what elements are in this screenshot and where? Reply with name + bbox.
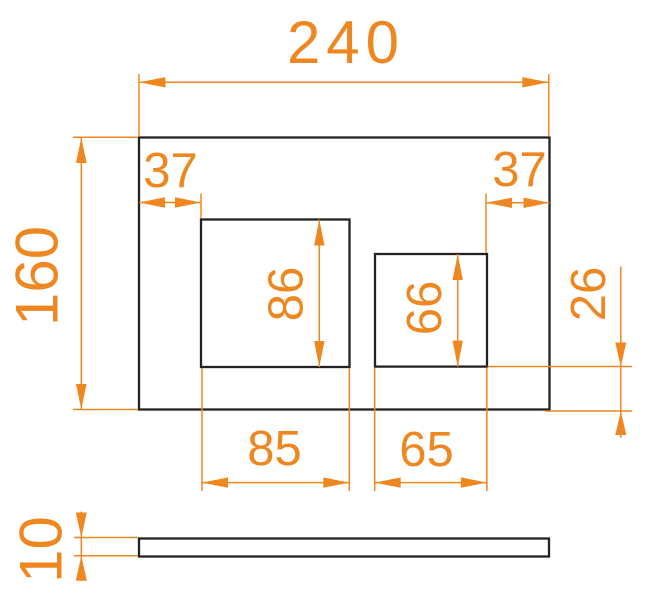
svg-text:26: 26 xyxy=(562,267,616,322)
svg-text:85: 85 xyxy=(247,422,302,476)
svg-text:37: 37 xyxy=(492,143,547,197)
svg-text:160: 160 xyxy=(4,226,71,326)
svg-text:65: 65 xyxy=(399,423,454,477)
svg-text:10: 10 xyxy=(8,516,75,583)
svg-text:240: 240 xyxy=(287,9,405,76)
svg-text:66: 66 xyxy=(398,281,452,336)
svg-text:86: 86 xyxy=(260,267,314,322)
svg-text:37: 37 xyxy=(143,144,198,198)
